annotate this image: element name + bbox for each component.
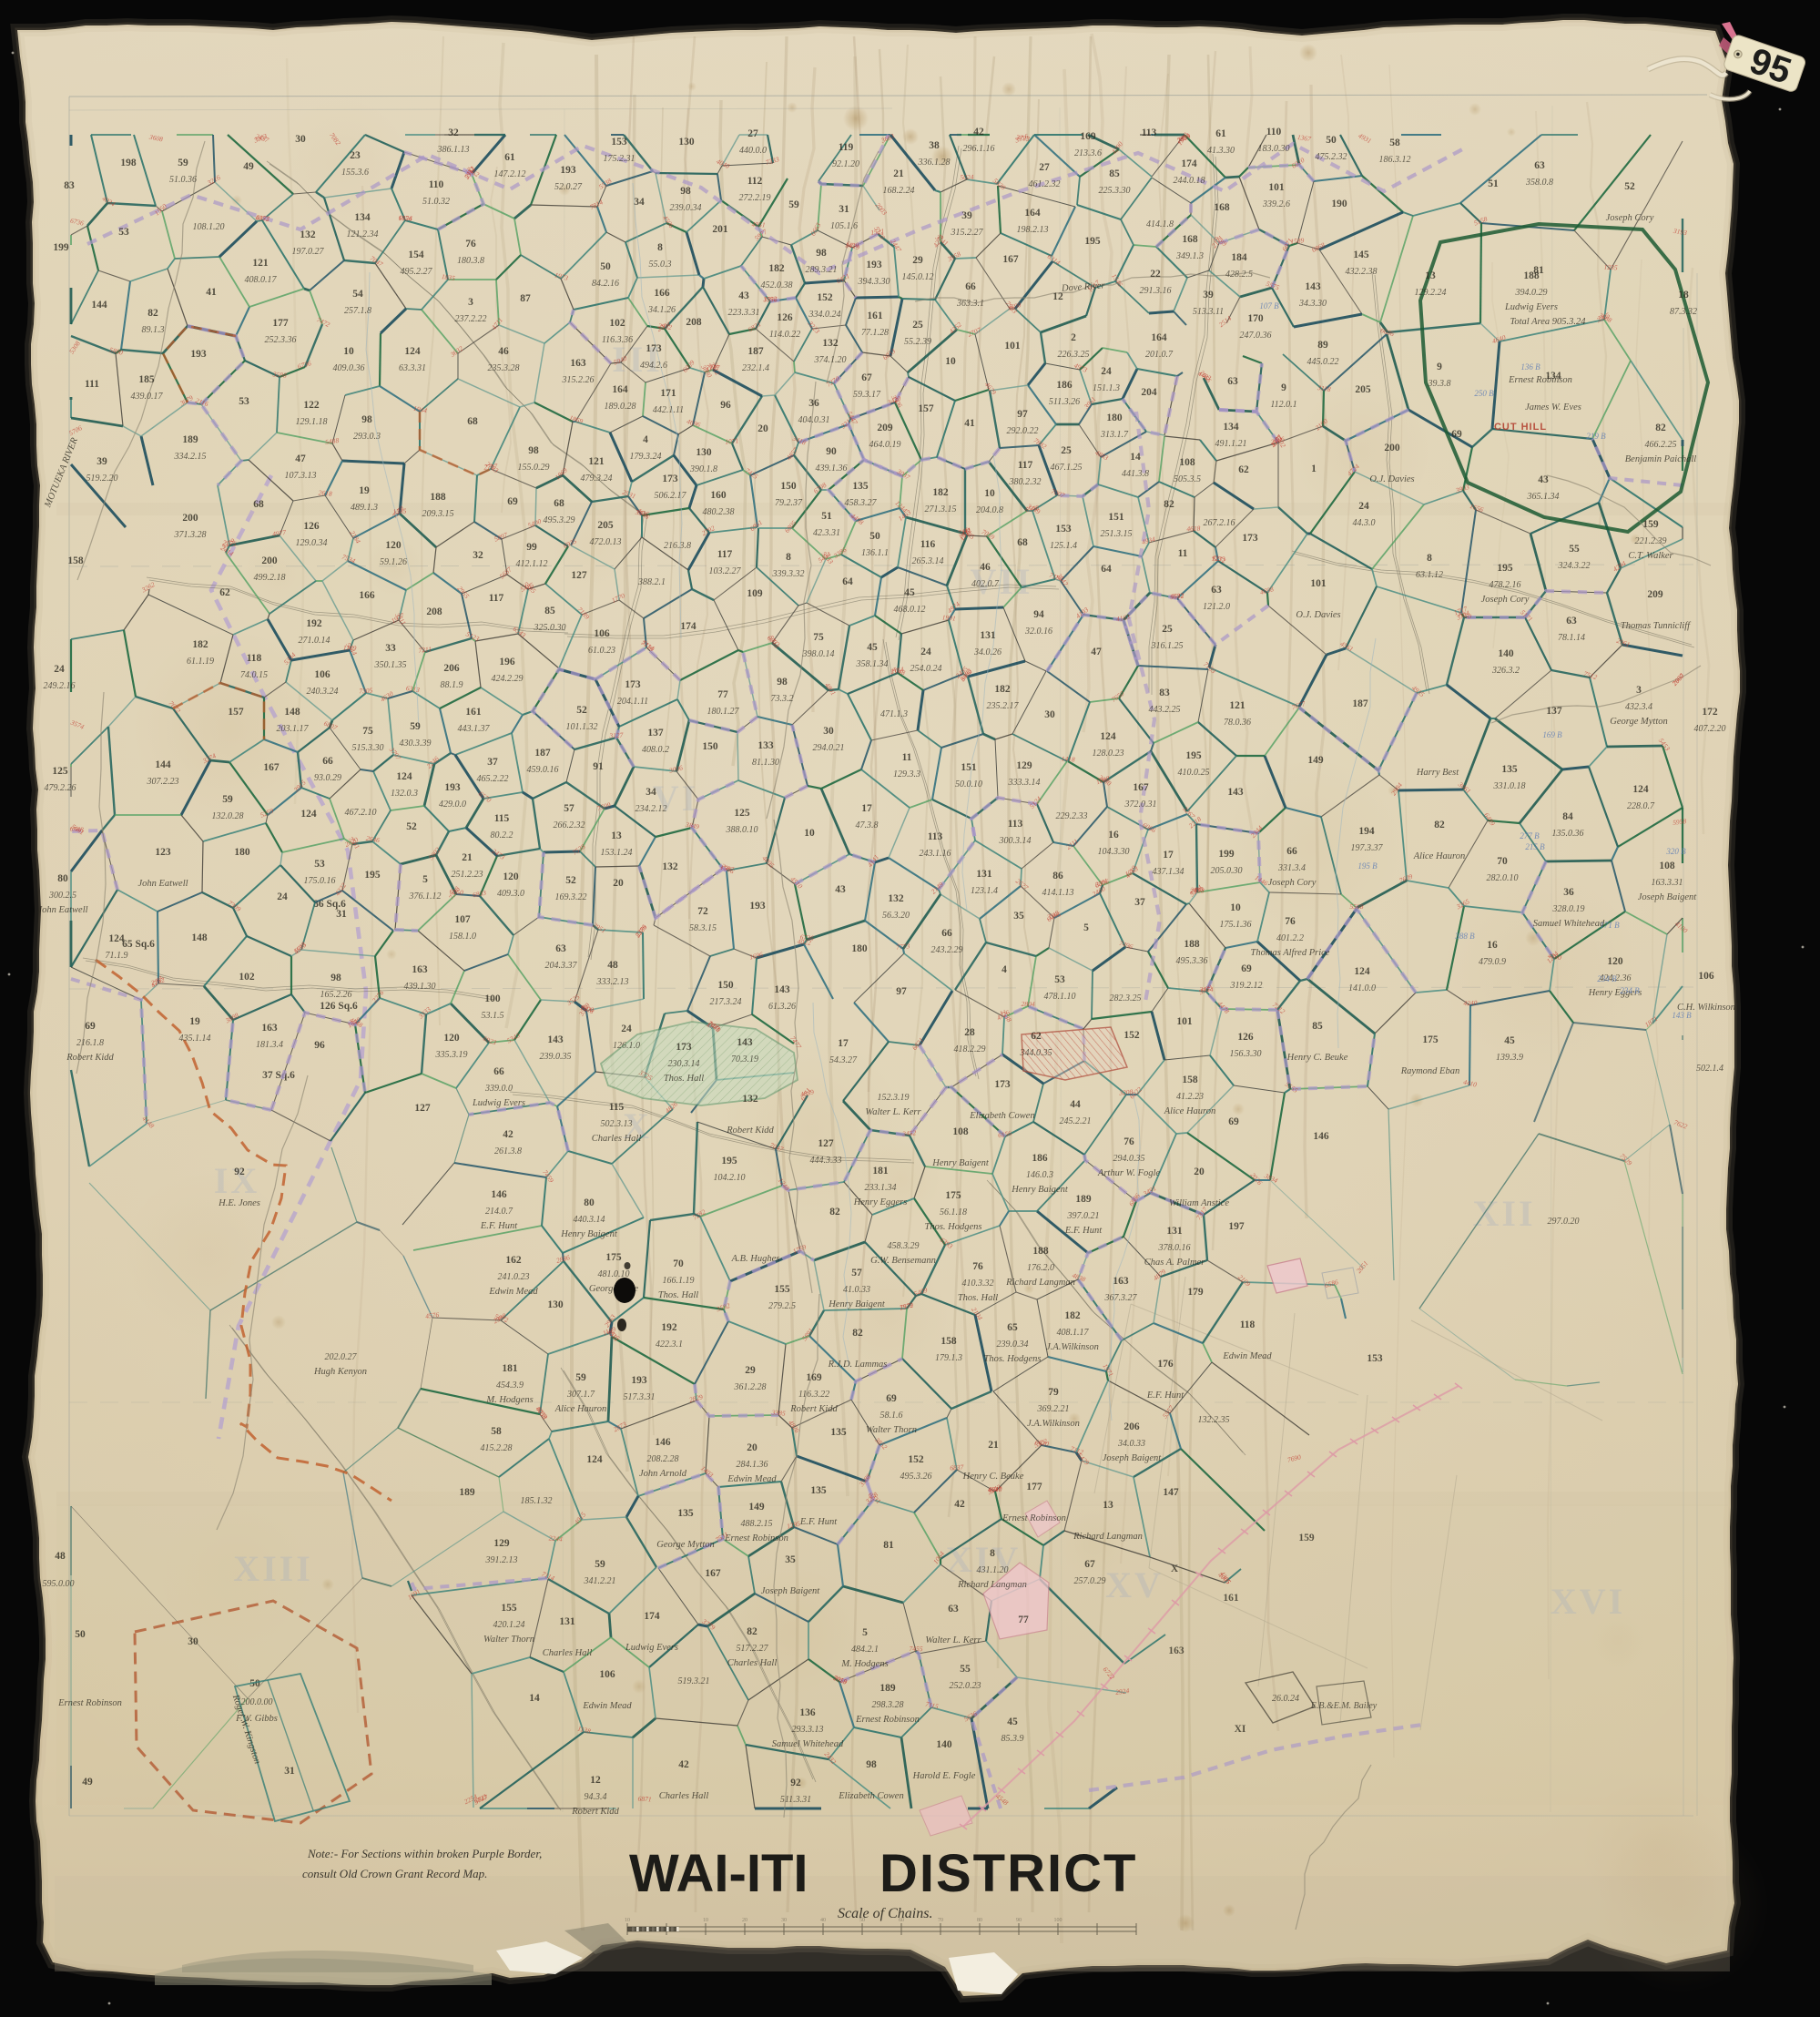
svg-text:124: 124 <box>108 933 125 944</box>
svg-text:135.0.36: 135.0.36 <box>1552 829 1584 839</box>
svg-text:169.3.22: 169.3.22 <box>555 892 587 902</box>
svg-text:230.3.14: 230.3.14 <box>668 1059 700 1069</box>
svg-text:43: 43 <box>835 884 846 895</box>
svg-text:114.0.22: 114.0.22 <box>769 330 800 340</box>
svg-text:271.0.14: 271.0.14 <box>299 636 330 646</box>
svg-text:E.F. Hunt: E.F. Hunt <box>480 1221 518 1231</box>
svg-text:277 B: 277 B <box>1520 831 1540 840</box>
svg-text:Note:- For Sections within bro: Note:- For Sections within broken Purple… <box>307 1847 542 1860</box>
svg-text:339.3.32: 339.3.32 <box>772 569 805 579</box>
svg-text:17: 17 <box>838 1038 849 1049</box>
svg-text:104.3.30: 104.3.30 <box>1098 847 1130 857</box>
svg-text:129.0.34: 129.0.34 <box>296 538 328 548</box>
svg-text:10: 10 <box>1230 902 1241 913</box>
svg-text:175: 175 <box>1422 1034 1439 1045</box>
svg-text:465.2.22: 465.2.22 <box>477 774 509 784</box>
svg-text:Ernest Robinson: Ernest Robinson <box>1002 1513 1066 1523</box>
svg-text:186: 186 <box>1032 1153 1048 1164</box>
svg-text:163.3.31: 163.3.31 <box>1652 878 1683 888</box>
svg-text:502.1.4: 502.1.4 <box>1696 1064 1723 1074</box>
svg-text:293.3.13: 293.3.13 <box>792 1725 824 1735</box>
svg-text:90: 90 <box>826 446 837 457</box>
svg-text:62: 62 <box>1031 1031 1042 1042</box>
svg-text:Elizabeth Cowen: Elizabeth Cowen <box>838 1791 903 1801</box>
svg-text:50: 50 <box>869 531 880 542</box>
svg-text:10: 10 <box>703 1918 708 1923</box>
svg-text:402.0.7: 402.0.7 <box>971 579 1000 589</box>
svg-text:147.2.12: 147.2.12 <box>494 169 526 179</box>
svg-text:144: 144 <box>91 300 107 311</box>
svg-text:113: 113 <box>928 831 943 842</box>
svg-text:168: 168 <box>1182 234 1198 245</box>
svg-text:422.3.1: 422.3.1 <box>656 1340 683 1350</box>
svg-text:216.3.8: 216.3.8 <box>664 541 691 551</box>
svg-text:25: 25 <box>1061 445 1072 456</box>
svg-text:208: 208 <box>426 606 442 617</box>
svg-text:82: 82 <box>829 1207 840 1217</box>
svg-text:24: 24 <box>1101 366 1112 377</box>
svg-text:179.3.24: 179.3.24 <box>630 452 662 462</box>
svg-text:A.B. Hughes: A.B. Hughes <box>731 1254 780 1264</box>
svg-text:Ludwig Evers: Ludwig Evers <box>1504 302 1558 312</box>
svg-text:61.3.26: 61.3.26 <box>768 1002 796 1012</box>
svg-text:98: 98 <box>816 248 827 259</box>
svg-text:164: 164 <box>612 384 628 395</box>
svg-text:479.3.24: 479.3.24 <box>581 474 613 484</box>
svg-text:1235: 1235 <box>1603 263 1618 272</box>
svg-text:100: 100 <box>484 993 501 1004</box>
svg-text:66: 66 <box>965 281 976 292</box>
svg-text:9: 9 <box>1437 362 1442 372</box>
svg-text:188: 188 <box>1032 1246 1049 1257</box>
svg-text:505.3.5: 505.3.5 <box>1174 474 1201 484</box>
svg-text:365.1.34: 365.1.34 <box>1527 492 1560 502</box>
svg-text:148: 148 <box>191 932 208 943</box>
svg-text:E.F. Hunt: E.F. Hunt <box>799 1517 838 1527</box>
svg-text:43: 43 <box>1538 474 1549 485</box>
svg-text:5: 5 <box>1083 922 1089 933</box>
svg-text:2275: 2275 <box>222 538 237 548</box>
svg-text:480.2.38: 480.2.38 <box>703 507 735 517</box>
svg-text:4647: 4647 <box>988 1484 1002 1493</box>
svg-text:42: 42 <box>678 1759 689 1770</box>
svg-text:6871: 6871 <box>637 1795 651 1804</box>
svg-text:164: 164 <box>1024 208 1041 219</box>
svg-text:45: 45 <box>904 587 915 598</box>
svg-text:158: 158 <box>67 555 84 566</box>
svg-text:8: 8 <box>657 242 663 253</box>
svg-text:190: 190 <box>1331 199 1347 209</box>
svg-text:Hugh Kenyon: Hugh Kenyon <box>313 1367 367 1377</box>
svg-text:132.0.3: 132.0.3 <box>391 789 418 799</box>
svg-text:237.2.22: 237.2.22 <box>455 314 487 324</box>
svg-text:495.3.36: 495.3.36 <box>1176 956 1208 966</box>
svg-text:63: 63 <box>555 943 566 954</box>
svg-text:412.1.12: 412.1.12 <box>516 559 548 569</box>
svg-text:Benjamin Paichall: Benjamin Paichall <box>1625 454 1697 464</box>
svg-text:148: 148 <box>284 707 300 718</box>
svg-text:187: 187 <box>1352 698 1368 709</box>
svg-text:74.0.15: 74.0.15 <box>240 670 268 680</box>
svg-text:81.1.30: 81.1.30 <box>752 758 779 768</box>
svg-text:201.0.7: 201.0.7 <box>1145 350 1174 360</box>
svg-text:87: 87 <box>520 293 531 304</box>
svg-text:136.1.1: 136.1.1 <box>861 548 889 558</box>
svg-text:131: 131 <box>1166 1226 1183 1237</box>
svg-text:24: 24 <box>277 891 288 902</box>
svg-text:58: 58 <box>1389 138 1400 148</box>
svg-text:108: 108 <box>1659 861 1675 871</box>
svg-text:154: 154 <box>408 250 424 260</box>
svg-text:153: 153 <box>1367 1353 1383 1364</box>
svg-text:110: 110 <box>429 179 444 190</box>
svg-text:168: 168 <box>1214 202 1230 213</box>
svg-text:63: 63 <box>1211 585 1222 596</box>
svg-text:414.1.13: 414.1.13 <box>1042 888 1074 898</box>
svg-text:Joseph Baigent: Joseph Baigent <box>1103 1453 1163 1463</box>
svg-text:42: 42 <box>503 1129 513 1140</box>
svg-text:80: 80 <box>57 873 68 884</box>
svg-text:46: 46 <box>498 346 509 357</box>
svg-text:104.2.10: 104.2.10 <box>714 1173 746 1183</box>
svg-text:Richard Langman: Richard Langman <box>1005 1278 1075 1288</box>
svg-text:143 B: 143 B <box>1672 1011 1692 1020</box>
svg-text:41.3.30: 41.3.30 <box>1207 146 1235 156</box>
svg-text:145: 145 <box>1353 250 1369 260</box>
svg-text:39.3.8: 39.3.8 <box>1428 379 1451 389</box>
svg-text:19: 19 <box>359 485 370 496</box>
svg-text:152: 152 <box>817 292 833 303</box>
svg-text:182: 182 <box>768 263 785 274</box>
svg-text:208.2.28: 208.2.28 <box>647 1454 679 1464</box>
svg-text:2787: 2787 <box>483 462 498 471</box>
svg-text:60: 60 <box>899 1918 904 1923</box>
svg-text:55: 55 <box>960 1664 971 1675</box>
svg-text:48: 48 <box>55 1551 66 1562</box>
svg-text:58.3.15: 58.3.15 <box>689 923 717 933</box>
svg-text:XII: XII <box>1472 1193 1535 1234</box>
svg-text:189: 189 <box>1075 1194 1092 1205</box>
svg-text:186: 186 <box>1056 380 1073 391</box>
svg-text:464.0.19: 464.0.19 <box>869 440 901 450</box>
svg-text:163: 163 <box>570 358 586 369</box>
svg-text:257.0.29: 257.0.29 <box>1074 1576 1106 1586</box>
svg-text:133: 133 <box>757 740 774 751</box>
svg-text:132: 132 <box>888 893 904 904</box>
svg-text:158: 158 <box>1182 1075 1198 1085</box>
svg-text:Joseph Cory: Joseph Cory <box>1481 595 1530 605</box>
svg-text:55: 55 <box>1569 544 1580 555</box>
svg-text:245.2.21: 245.2.21 <box>1060 1116 1092 1126</box>
svg-text:108.1.20: 108.1.20 <box>193 222 225 232</box>
svg-text:Walter L. Kerr: Walter L. Kerr <box>925 1635 981 1645</box>
svg-text:132: 132 <box>822 338 839 349</box>
svg-text:122: 122 <box>303 400 320 411</box>
svg-text:17: 17 <box>1163 850 1174 861</box>
svg-text:126: 126 <box>303 521 320 532</box>
svg-text:458.3.29: 458.3.29 <box>888 1241 920 1251</box>
svg-text:202.0.27: 202.0.27 <box>325 1352 358 1362</box>
svg-text:66: 66 <box>1286 846 1297 857</box>
svg-text:59: 59 <box>178 158 188 168</box>
svg-text:293.0.3: 293.0.3 <box>353 432 381 442</box>
svg-text:77: 77 <box>717 689 728 700</box>
svg-text:20: 20 <box>613 878 624 889</box>
svg-text:XVI: XVI <box>1551 1581 1625 1622</box>
svg-text:120: 120 <box>443 1033 460 1044</box>
svg-text:166: 166 <box>359 590 375 601</box>
svg-text:167: 167 <box>705 1568 721 1579</box>
svg-text:458.3.27: 458.3.27 <box>845 498 878 508</box>
svg-text:439.1.36: 439.1.36 <box>816 464 848 474</box>
svg-text:291.3.16: 291.3.16 <box>1140 286 1172 296</box>
svg-text:326.3.2: 326.3.2 <box>1491 666 1520 676</box>
svg-text:42: 42 <box>954 1499 965 1510</box>
svg-text:21: 21 <box>988 1440 999 1451</box>
svg-text:467.2.10: 467.2.10 <box>345 808 377 818</box>
svg-text:113: 113 <box>1008 819 1023 830</box>
svg-text:159: 159 <box>1642 519 1659 530</box>
svg-text:152.3.19: 152.3.19 <box>878 1093 910 1103</box>
svg-text:479.2.26: 479.2.26 <box>45 783 76 793</box>
svg-text:Harry Best: Harry Best <box>1416 768 1459 778</box>
svg-text:515.3.30: 515.3.30 <box>352 743 384 753</box>
svg-text:58.1.6: 58.1.6 <box>880 1411 903 1421</box>
svg-text:82: 82 <box>747 1626 757 1637</box>
svg-text:E.B.&E.M. Bailey: E.B.&E.M. Bailey <box>1310 1701 1378 1711</box>
svg-text:117: 117 <box>489 593 504 604</box>
svg-text:98: 98 <box>528 445 539 456</box>
svg-text:Walter L. Kerr: Walter L. Kerr <box>865 1107 921 1117</box>
svg-text:35: 35 <box>785 1554 796 1565</box>
svg-text:163: 163 <box>1113 1276 1129 1287</box>
svg-text:53: 53 <box>239 396 249 407</box>
svg-text:3: 3 <box>468 297 473 308</box>
svg-text:129: 129 <box>493 1538 510 1549</box>
svg-text:37 Sq.6: 37 Sq.6 <box>262 1070 295 1081</box>
svg-text:129: 129 <box>1016 760 1032 771</box>
svg-text:120: 120 <box>503 871 519 882</box>
svg-text:Charles Hall: Charles Hall <box>592 1134 642 1144</box>
svg-text:4: 4 <box>1002 964 1007 975</box>
svg-text:80.2.2: 80.2.2 <box>491 830 513 840</box>
svg-text:388.0.10: 388.0.10 <box>726 825 758 835</box>
svg-text:124: 124 <box>1100 731 1116 742</box>
svg-text:76: 76 <box>1124 1136 1134 1147</box>
svg-text:41.0.33: 41.0.33 <box>843 1285 870 1295</box>
svg-text:137: 137 <box>647 728 664 739</box>
svg-text:101: 101 <box>1004 341 1021 351</box>
svg-text:331.0.18: 331.0.18 <box>1493 781 1526 791</box>
svg-text:234.2.12: 234.2.12 <box>635 804 667 814</box>
svg-text:George Mytton: George Mytton <box>656 1540 714 1550</box>
svg-text:9: 9 <box>1281 382 1286 393</box>
svg-text:192: 192 <box>661 1322 677 1333</box>
svg-text:4240: 4240 <box>1463 999 1478 1008</box>
svg-text:24: 24 <box>920 647 931 657</box>
svg-text:98: 98 <box>777 677 788 688</box>
svg-text:59.3.17: 59.3.17 <box>853 390 881 400</box>
svg-text:173: 173 <box>662 474 678 484</box>
svg-text:408.1.17: 408.1.17 <box>1057 1328 1090 1338</box>
svg-text:228.0.7: 228.0.7 <box>1627 801 1655 811</box>
svg-text:432.3.4: 432.3.4 <box>1625 702 1652 712</box>
svg-text:53: 53 <box>118 227 129 238</box>
svg-text:235.2.17: 235.2.17 <box>987 701 1020 711</box>
svg-text:94.3.4: 94.3.4 <box>585 1792 607 1802</box>
svg-text:225.3.30: 225.3.30 <box>1099 186 1131 196</box>
svg-text:223.3.31: 223.3.31 <box>728 308 760 318</box>
svg-text:243.1.16: 243.1.16 <box>920 849 951 859</box>
svg-text:488.2.15: 488.2.15 <box>741 1519 773 1529</box>
svg-text:132.2.35: 132.2.35 <box>1198 1415 1230 1425</box>
svg-text:489.1.3: 489.1.3 <box>351 503 378 513</box>
svg-text:131: 131 <box>980 630 996 641</box>
svg-text:91: 91 <box>593 761 604 772</box>
svg-text:93.0.29: 93.0.29 <box>314 773 341 783</box>
svg-text:127: 127 <box>414 1103 431 1114</box>
svg-text:408.0.17: 408.0.17 <box>245 275 278 285</box>
svg-text:101: 101 <box>1176 1016 1193 1027</box>
svg-text:R.J.D. Lammas: R.J.D. Lammas <box>828 1360 888 1370</box>
svg-text:59: 59 <box>595 1559 605 1570</box>
svg-text:161: 161 <box>465 707 482 718</box>
svg-text:Harold E. Fogle: Harold E. Fogle <box>912 1771 976 1781</box>
svg-text:21: 21 <box>462 852 473 863</box>
svg-text:41: 41 <box>206 287 217 298</box>
svg-text:59.1.26: 59.1.26 <box>380 557 407 567</box>
svg-text:3452: 3452 <box>901 1128 917 1138</box>
svg-text:132: 132 <box>742 1094 758 1105</box>
svg-text:49: 49 <box>82 1777 93 1788</box>
svg-text:437.1.34: 437.1.34 <box>1153 867 1185 877</box>
svg-text:135: 135 <box>677 1508 694 1519</box>
svg-text:14: 14 <box>529 1693 540 1704</box>
svg-text:152: 152 <box>1124 1030 1140 1041</box>
svg-text:22: 22 <box>1150 269 1161 280</box>
svg-text:19: 19 <box>189 1016 200 1027</box>
svg-text:E.F. Hunt: E.F. Hunt <box>1064 1226 1103 1236</box>
svg-text:180: 180 <box>851 943 868 954</box>
svg-text:110: 110 <box>1266 127 1282 138</box>
svg-text:107 B: 107 B <box>1259 301 1279 311</box>
svg-text:115: 115 <box>494 813 510 824</box>
svg-text:195 B: 195 B <box>1357 861 1378 871</box>
svg-text:252.3.36: 252.3.36 <box>265 335 297 345</box>
svg-text:199: 199 <box>53 242 69 253</box>
svg-text:179: 179 <box>1187 1287 1204 1298</box>
svg-text:234 B: 234 B <box>1620 986 1640 995</box>
svg-text:Richard Langman: Richard Langman <box>1073 1532 1143 1542</box>
svg-text:150: 150 <box>717 980 734 991</box>
svg-text:339.2.6: 339.2.6 <box>1262 199 1290 209</box>
svg-text:7211: 7211 <box>418 645 432 655</box>
svg-text:45: 45 <box>867 642 878 653</box>
svg-text:CUT HILL: CUT HILL <box>1494 422 1547 433</box>
svg-text:198: 198 <box>120 158 137 168</box>
svg-text:12: 12 <box>590 1775 601 1786</box>
svg-text:70.3.19: 70.3.19 <box>731 1054 758 1065</box>
svg-text:187: 187 <box>747 346 764 357</box>
svg-text:26.0.24: 26.0.24 <box>1272 1694 1299 1704</box>
svg-text:Robert Kidd: Robert Kidd <box>789 1404 838 1414</box>
svg-text:59: 59 <box>410 721 421 732</box>
svg-text:150: 150 <box>780 481 797 492</box>
svg-text:Charles Hall: Charles Hall <box>727 1658 778 1668</box>
svg-text:27: 27 <box>747 128 758 139</box>
svg-text:31: 31 <box>284 1766 295 1777</box>
svg-text:82: 82 <box>852 1328 863 1339</box>
svg-text:123: 123 <box>155 847 171 858</box>
svg-text:146: 146 <box>491 1189 507 1200</box>
svg-text:135: 135 <box>830 1427 847 1438</box>
svg-text:7455: 7455 <box>909 1645 922 1653</box>
svg-text:5024: 5024 <box>960 173 974 182</box>
svg-text:430.3.39: 430.3.39 <box>400 739 432 749</box>
svg-text:38: 38 <box>929 140 940 151</box>
svg-text:193: 193 <box>749 901 766 912</box>
svg-text:380.2.32: 380.2.32 <box>1009 477 1042 487</box>
svg-text:William Anstice: William Anstice <box>1169 1198 1229 1208</box>
svg-text:217.3.24: 217.3.24 <box>710 997 742 1007</box>
svg-text:349.1.3: 349.1.3 <box>1175 251 1204 261</box>
svg-text:Alice Hauron: Alice Hauron <box>1413 851 1465 861</box>
svg-text:Ludwig Evers: Ludwig Evers <box>472 1098 525 1108</box>
svg-text:30: 30 <box>295 134 306 145</box>
svg-text:495.3.29: 495.3.29 <box>544 515 575 525</box>
svg-text:32: 32 <box>448 127 459 138</box>
svg-text:107.3.13: 107.3.13 <box>285 471 317 481</box>
svg-text:33: 33 <box>385 643 396 654</box>
svg-text:130: 130 <box>547 1299 564 1310</box>
svg-text:174: 174 <box>644 1611 660 1622</box>
svg-text:174: 174 <box>1181 158 1197 169</box>
svg-text:439.0.17: 439.0.17 <box>131 392 164 402</box>
svg-text:52: 52 <box>1624 181 1635 192</box>
svg-text:28: 28 <box>964 1027 975 1038</box>
svg-text:219 B: 219 B <box>1586 432 1606 441</box>
svg-text:98: 98 <box>866 1759 877 1770</box>
svg-text:183.0.30: 183.0.30 <box>1258 144 1290 154</box>
svg-text:consult Old Crown Grant Record: consult Old Crown Grant Record Map. <box>302 1867 487 1880</box>
svg-text:89.1.3: 89.1.3 <box>142 325 165 335</box>
svg-text:34: 34 <box>646 787 656 798</box>
svg-text:173: 173 <box>625 679 641 690</box>
svg-text:279.2.5: 279.2.5 <box>768 1301 796 1311</box>
svg-text:12: 12 <box>1052 291 1063 302</box>
svg-text:84.2.16: 84.2.16 <box>592 279 619 289</box>
svg-text:513.3.11: 513.3.11 <box>1193 307 1224 317</box>
svg-text:41: 41 <box>964 418 975 429</box>
svg-text:177: 177 <box>272 318 289 329</box>
svg-text:M. Hodgens: M. Hodgens <box>840 1659 888 1669</box>
svg-text:376.1.12: 376.1.12 <box>409 891 442 902</box>
svg-text:163: 163 <box>412 964 428 975</box>
svg-text:72: 72 <box>697 906 708 917</box>
svg-text:Thos. Hodgens: Thos. Hodgens <box>983 1354 1041 1364</box>
svg-text:132: 132 <box>662 861 678 872</box>
svg-text:313.1.7: 313.1.7 <box>1100 430 1129 440</box>
svg-text:116.3.36: 116.3.36 <box>602 335 633 345</box>
svg-text:Richard Langman: Richard Langman <box>957 1580 1027 1590</box>
svg-text:112: 112 <box>747 176 763 187</box>
svg-text:320 B: 320 B <box>1665 847 1686 856</box>
svg-text:328.0.19: 328.0.19 <box>1552 904 1585 914</box>
svg-text:124: 124 <box>1632 784 1649 795</box>
svg-text:378.0.16: 378.0.16 <box>1158 1243 1191 1253</box>
svg-text:Elizabeth Cowen: Elizabeth Cowen <box>969 1111 1034 1121</box>
svg-text:254.0.24: 254.0.24 <box>910 664 942 674</box>
